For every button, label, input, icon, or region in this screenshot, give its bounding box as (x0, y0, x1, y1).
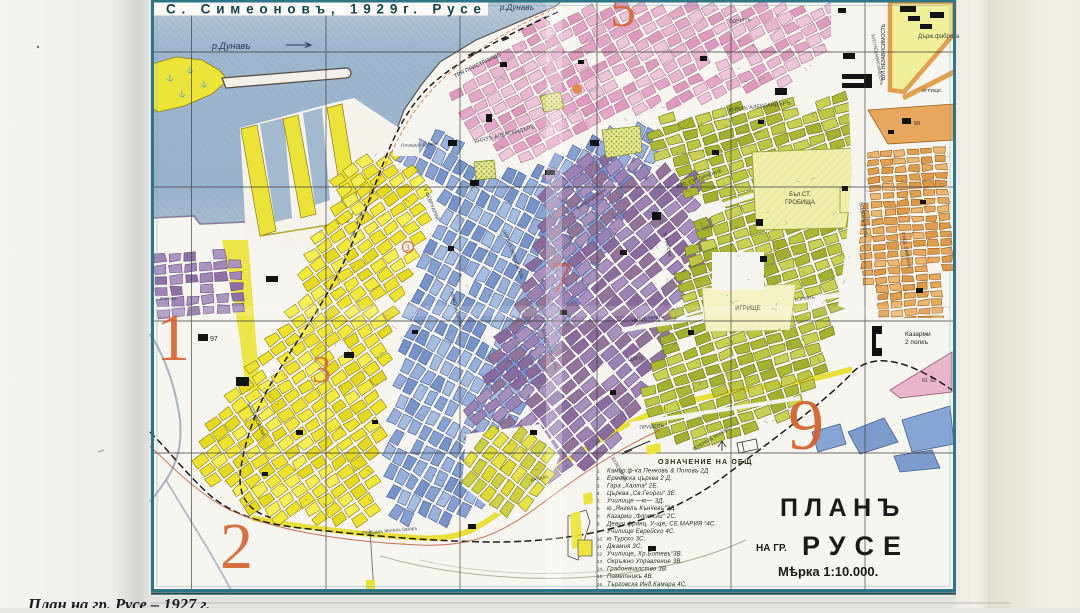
svg-text:ПЛАНЪ: ПЛАНЪ (780, 494, 906, 522)
svg-text:Казарми „Флотски“ 2С.: Казарми „Флотски“ 2С. (607, 514, 677, 520)
svg-text:План на гр. Русе – 1927 г.: План на гр. Русе – 1927 г. (27, 595, 210, 608)
svg-text:Казарми: Казарми (905, 331, 931, 338)
svg-text:10.: 10. (597, 537, 603, 542)
svg-text:12.: 12. (597, 552, 603, 557)
svg-text:ИГРИЩЕ: ИГРИЩЕ (922, 88, 941, 93)
svg-text:⚓: ⚓ (178, 90, 185, 98)
svg-text:Гара „Халта“ 2Е.: Гара „Халта“ 2Е. (607, 484, 659, 490)
svg-text:Джамия 3С.: Джамия 3С. (606, 544, 642, 550)
svg-text:Паметникъ 4В.: Паметникъ 4В. (607, 574, 654, 580)
svg-text:4.: 4. (597, 491, 601, 496)
svg-text:Мѣрка 1:10.000.: Мѣрка 1:10.000. (778, 564, 878, 579)
svg-text:1.: 1. (597, 469, 601, 474)
svg-text:16.: 16. (597, 582, 603, 587)
svg-text:РУСЕ: РУСЕ (802, 531, 910, 561)
svg-text:5.: 5. (597, 499, 601, 504)
svg-text:ОЗНАЧЕНИЕ НА ОБЩ: ОЗНАЧЕНИЕ НА ОБЩ (658, 459, 753, 466)
svg-text:ГРОБИЩА: ГРОБИЩА (785, 200, 815, 206)
svg-text:15.: 15. (597, 574, 603, 579)
svg-text:9.: 9. (597, 529, 601, 534)
svg-text:8.: 8. (597, 521, 601, 526)
svg-text:7.: 7. (597, 514, 601, 519)
svg-text:Девич.франц. У-ще„ СЕ.МАРИЯ “4: Девич.франц. У-ще„ СЕ.МАРИЯ “4С. (606, 521, 716, 527)
svg-text:2 полкъ: 2 полкъ (905, 339, 928, 346)
svg-text:13.: 13. (597, 559, 603, 564)
svg-text:11.: 11. (597, 544, 603, 549)
svg-text:2.: 2. (596, 476, 601, 481)
svg-text:9: 9 (788, 385, 824, 465)
svg-text:Училище —ю— 3Д.: Училище —ю— 3Д. (606, 499, 665, 505)
svg-text:97: 97 (210, 336, 218, 343)
svg-text:3: 3 (405, 243, 410, 253)
svg-text:14.: 14. (597, 567, 603, 572)
svg-text:6.: 6. (597, 506, 601, 511)
svg-text:⚓: ⚓ (200, 80, 207, 88)
svg-text:50: 50 (914, 121, 920, 127)
svg-text:р.Дунавъ: р.Дунавъ (211, 41, 251, 51)
svg-text:Ерменска църква 2 Д.: Ерменска църква 2 Д. (607, 476, 672, 482)
svg-text:р.Дунавъ: р.Дунавъ (499, 3, 534, 12)
svg-text:НА ГР.: НА ГР. (756, 543, 787, 554)
svg-text:Окръжно Управление 3В.: Окръжно Управление 3В. (607, 559, 682, 565)
svg-text:3: 3 (312, 349, 331, 391)
svg-text:Училище„ Хр.Ботевъ“3В.: Училище„ Хр.Ботевъ“3В. (606, 552, 683, 558)
svg-text:Бъл.СТ.: Бъл.СТ. (789, 192, 811, 198)
svg-text:⚓: ⚓ (166, 74, 173, 82)
svg-text:2: 2 (220, 510, 253, 583)
svg-text:Камар.ф-ка Пенковъ & Поповъ 2Д: Камар.ф-ка Пенковъ & Поповъ 2Д (607, 469, 709, 475)
svg-text:Градоначалство 3В.: Градоначалство 3В. (607, 567, 668, 573)
svg-text:ю „Янгелъ Кънчевъ“3Д.: ю „Янгелъ Кънчевъ“3Д. (607, 506, 676, 512)
svg-text:⚓: ⚓ (186, 66, 193, 74)
svg-text:Училище Еврейско 4С.: Училище Еврейско 4С. (606, 528, 675, 535)
svg-text:Църква „Св.Георги“ 3Е.: Църква „Св.Георги“ 3Е. (607, 491, 677, 497)
svg-text:3.: 3. (597, 484, 601, 489)
svg-text:С. Симеоновъ, 1929г. Русе: С. Симеоновъ, 1929г. Русе (166, 2, 487, 17)
svg-text:ю Турско 3С.: ю Турско 3С. (607, 537, 646, 543)
